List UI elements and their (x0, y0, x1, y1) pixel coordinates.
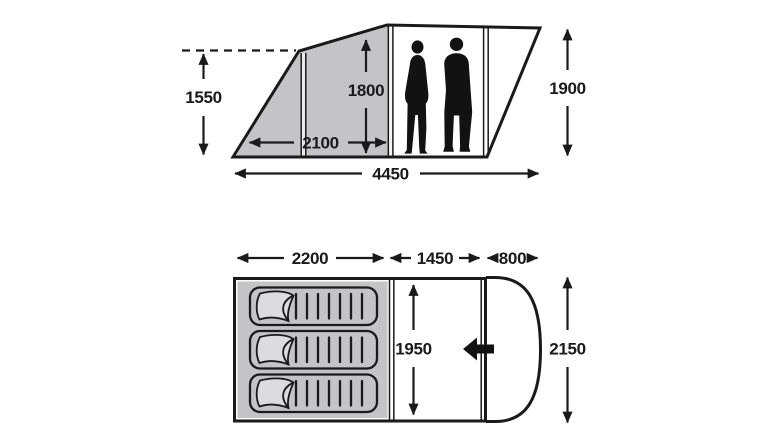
side-elevation-view: 1550 1800 2100 1900 4450 (182, 25, 586, 184)
dim-bedroom-width: 2200 (238, 249, 384, 268)
diagram-svg: 1550 1800 2100 1900 4450 (0, 0, 768, 440)
dim-label-1950: 1950 (395, 340, 432, 359)
dim-label-1900: 1900 (549, 79, 586, 98)
dim-label-1550: 1550 (185, 88, 222, 107)
dim-standing-height: 1900 (549, 30, 586, 156)
person-silhouette-woman (404, 40, 428, 153)
tent-dimensions-diagram: 1550 1800 2100 1900 4450 (0, 0, 768, 440)
dim-label-1450: 1450 (417, 249, 454, 268)
dim-front-section-height: 1550 (185, 54, 222, 155)
person-silhouette-man (443, 38, 472, 152)
sleeping-mat-3 (250, 375, 377, 413)
dim-total-depth: 2150 (549, 278, 586, 423)
floor-plan-view: 2200 1450 800 1950 2150 (235, 249, 586, 423)
pole-sleeve-middle (388, 26, 393, 156)
dim-label-1800: 1800 (348, 81, 385, 100)
dim-label-2150: 2150 (549, 340, 586, 359)
dim-label-800: 800 (499, 249, 526, 268)
sleeping-mat-1 (250, 288, 377, 326)
dim-label-4450: 4450 (372, 165, 409, 184)
dim-label-2100: 2100 (302, 134, 339, 153)
pole-sleeve-rear (484, 28, 489, 157)
sleeping-mat-2 (250, 331, 377, 369)
dim-label-2200: 2200 (292, 249, 329, 268)
dim-porch-depth: 800 (488, 249, 538, 268)
dim-living-width: 1450 (391, 249, 480, 268)
dim-total-length: 4450 (235, 165, 539, 184)
porch-outline (486, 278, 541, 422)
